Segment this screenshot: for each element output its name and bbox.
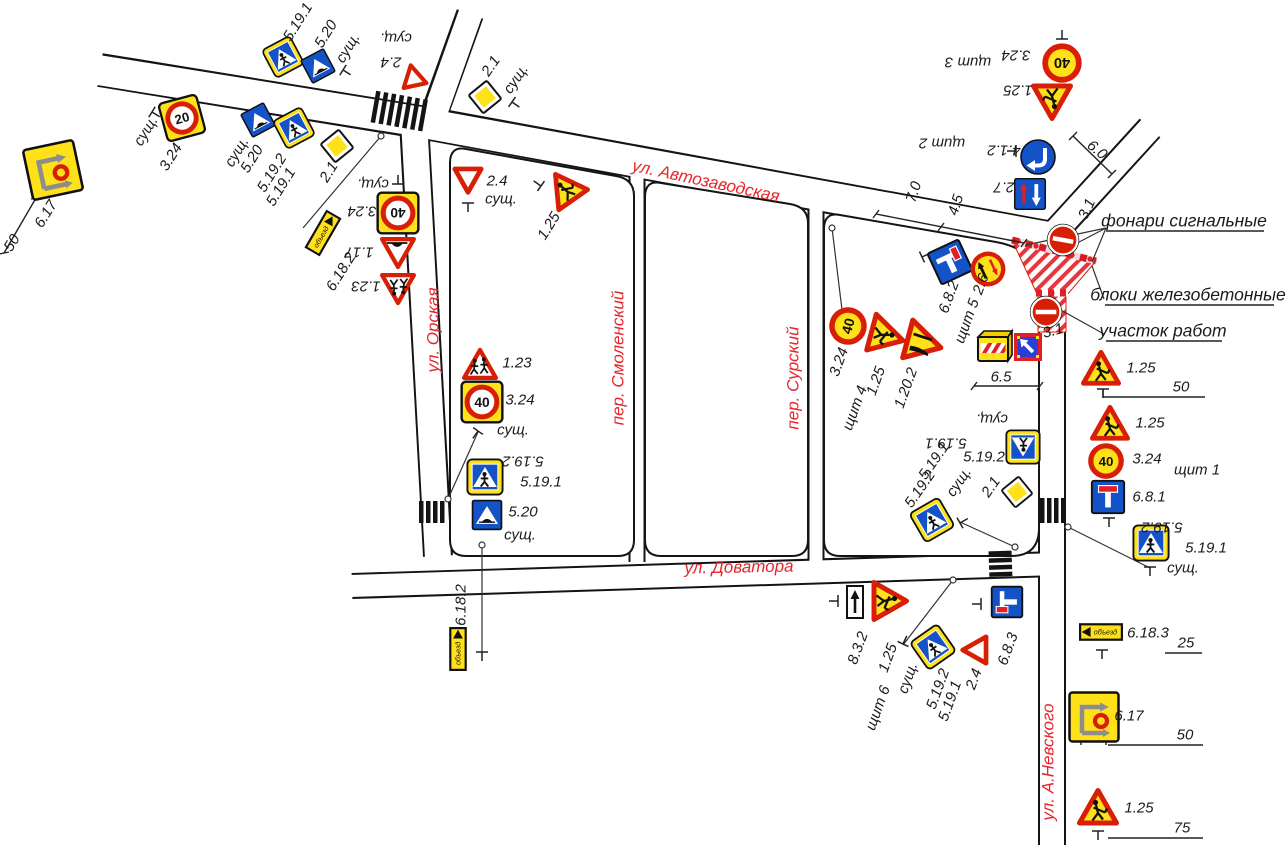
street-name: ул. А.Невского bbox=[1040, 703, 1057, 820]
existing-label: сущ. bbox=[485, 192, 517, 207]
sign-code-label: 1.23 bbox=[351, 279, 380, 294]
sign-8.3.2 bbox=[846, 585, 864, 619]
sign-code-label: 5.19.1 bbox=[520, 475, 562, 490]
dimension-label: 6.5 bbox=[991, 370, 1012, 385]
sign-code-label: 6.17 bbox=[1114, 709, 1143, 724]
traffic-scheme-canvas: 2040объезд40объезд404040объезд5.19.15.20… bbox=[0, 0, 1288, 845]
shield-label: щит 3 bbox=[945, 55, 991, 70]
existing-label: сущ. bbox=[1167, 561, 1199, 576]
sign-barrier bbox=[974, 327, 1016, 367]
annotation-label: участок работ bbox=[1099, 322, 1226, 340]
sign-1.25 bbox=[868, 580, 910, 622]
sign-2.4 bbox=[451, 163, 485, 197]
dimension-label: 25 bbox=[1178, 636, 1195, 651]
street-name: пер. Смоленский bbox=[610, 291, 627, 426]
sign-2.7 bbox=[1012, 176, 1048, 212]
sign-code-label: 5.19.1 bbox=[1185, 541, 1227, 556]
street-name: ул. Орская bbox=[425, 287, 442, 372]
sign-code-label: 2.4 bbox=[381, 55, 402, 70]
sign-6.17-detour bbox=[21, 138, 85, 202]
sign-code-label: 6.8.1 bbox=[1132, 490, 1165, 505]
sign-1.25 bbox=[1090, 404, 1130, 444]
existing-label: сущ. bbox=[976, 412, 1008, 427]
existing-label: сущ. bbox=[504, 528, 536, 543]
existing-label: сущ. bbox=[357, 177, 389, 192]
sign-6.17-detour bbox=[1068, 691, 1120, 743]
sign-code-label: 5.19.2 bbox=[963, 450, 1005, 465]
sign-2.1 bbox=[465, 77, 505, 117]
sign-2.4 bbox=[958, 633, 992, 667]
svg-text:40: 40 bbox=[390, 205, 406, 220]
existing-label: сущ. bbox=[380, 31, 412, 46]
sign-3.24: 40 bbox=[376, 191, 420, 235]
sign-5.19.1 bbox=[1005, 429, 1041, 465]
sign-code-label: 3.24 bbox=[347, 204, 376, 219]
sign-code-label: 6.18.3 bbox=[1127, 626, 1169, 641]
sign-1.25 bbox=[1081, 349, 1121, 389]
annotation-label: фонари сигнальные bbox=[1101, 212, 1267, 230]
sign-code-label: 5.19.2 bbox=[502, 454, 544, 469]
sign-6.8.1 bbox=[1089, 478, 1127, 516]
sign-1.23 bbox=[380, 270, 416, 306]
sign-6.18.3-detour: объезд bbox=[1079, 623, 1123, 641]
svg-text:объезд: объезд bbox=[455, 642, 463, 665]
sign-3.24: 40 bbox=[1041, 42, 1083, 84]
sign-1.23 bbox=[462, 347, 498, 383]
sign-code-label: 4.1.2 bbox=[987, 143, 1020, 158]
sign-3.1 bbox=[1042, 219, 1084, 261]
street-name: ул. Доватора bbox=[684, 558, 793, 577]
sign-code-label: 2.4 bbox=[487, 174, 508, 189]
sign-6.8.3 bbox=[989, 584, 1025, 620]
sign-code-label: 1.23 bbox=[502, 356, 531, 371]
sign-3.24: 40 bbox=[460, 380, 504, 424]
sign-code-label: 1.25 bbox=[1135, 416, 1164, 431]
dimension-label: 50 bbox=[1173, 380, 1190, 395]
dimension-label: 50 bbox=[1177, 728, 1194, 743]
shield-label: щит 2 bbox=[919, 136, 965, 151]
sign-code-label: 5.20 bbox=[508, 505, 537, 520]
annotation-label: блоки железобетонные bbox=[1090, 286, 1286, 304]
svg-text:объезд: объезд bbox=[1094, 629, 1117, 637]
sign-6.18.2-detour: объезд bbox=[449, 627, 467, 671]
sign-3.24: 40 bbox=[1087, 442, 1125, 480]
sign-2.1 bbox=[998, 473, 1035, 510]
existing-label: сущ. bbox=[497, 423, 529, 438]
sign-board bbox=[1014, 333, 1042, 361]
sign-code-label: 1.25 bbox=[1124, 801, 1153, 816]
sign-code-label: 1.17 bbox=[344, 245, 373, 260]
sign-code-label: 3.24 bbox=[505, 393, 534, 408]
sign-code-label: 1.25 bbox=[1126, 361, 1155, 376]
sign-code-label: 2.7 bbox=[994, 180, 1015, 195]
sign-2.1 bbox=[317, 126, 357, 166]
sign-1.25 bbox=[1031, 80, 1073, 122]
sign-1.17 bbox=[380, 234, 416, 270]
sign-code-label: 5.19.2 bbox=[1141, 520, 1183, 535]
dimension-label: 75 bbox=[1174, 821, 1191, 836]
sign-code-label: 3.24 bbox=[1001, 48, 1030, 63]
svg-text:40: 40 bbox=[1054, 54, 1070, 70]
street-name: пер. Сурский bbox=[785, 326, 802, 429]
sign-1.25 bbox=[1077, 787, 1119, 829]
svg-text:40: 40 bbox=[474, 395, 490, 410]
sign-5.20 bbox=[470, 498, 504, 532]
sign-4.1.2 bbox=[1018, 137, 1058, 177]
svg-text:40: 40 bbox=[1099, 454, 1114, 469]
sign-5.19.2 bbox=[466, 458, 504, 496]
sign-code-label: 3.24 bbox=[1132, 452, 1161, 467]
sign-code-label: 1.25 bbox=[1003, 83, 1032, 98]
sign-code-label: 6.18.2 bbox=[454, 584, 469, 626]
shield-label: щит 1 bbox=[1174, 463, 1220, 478]
